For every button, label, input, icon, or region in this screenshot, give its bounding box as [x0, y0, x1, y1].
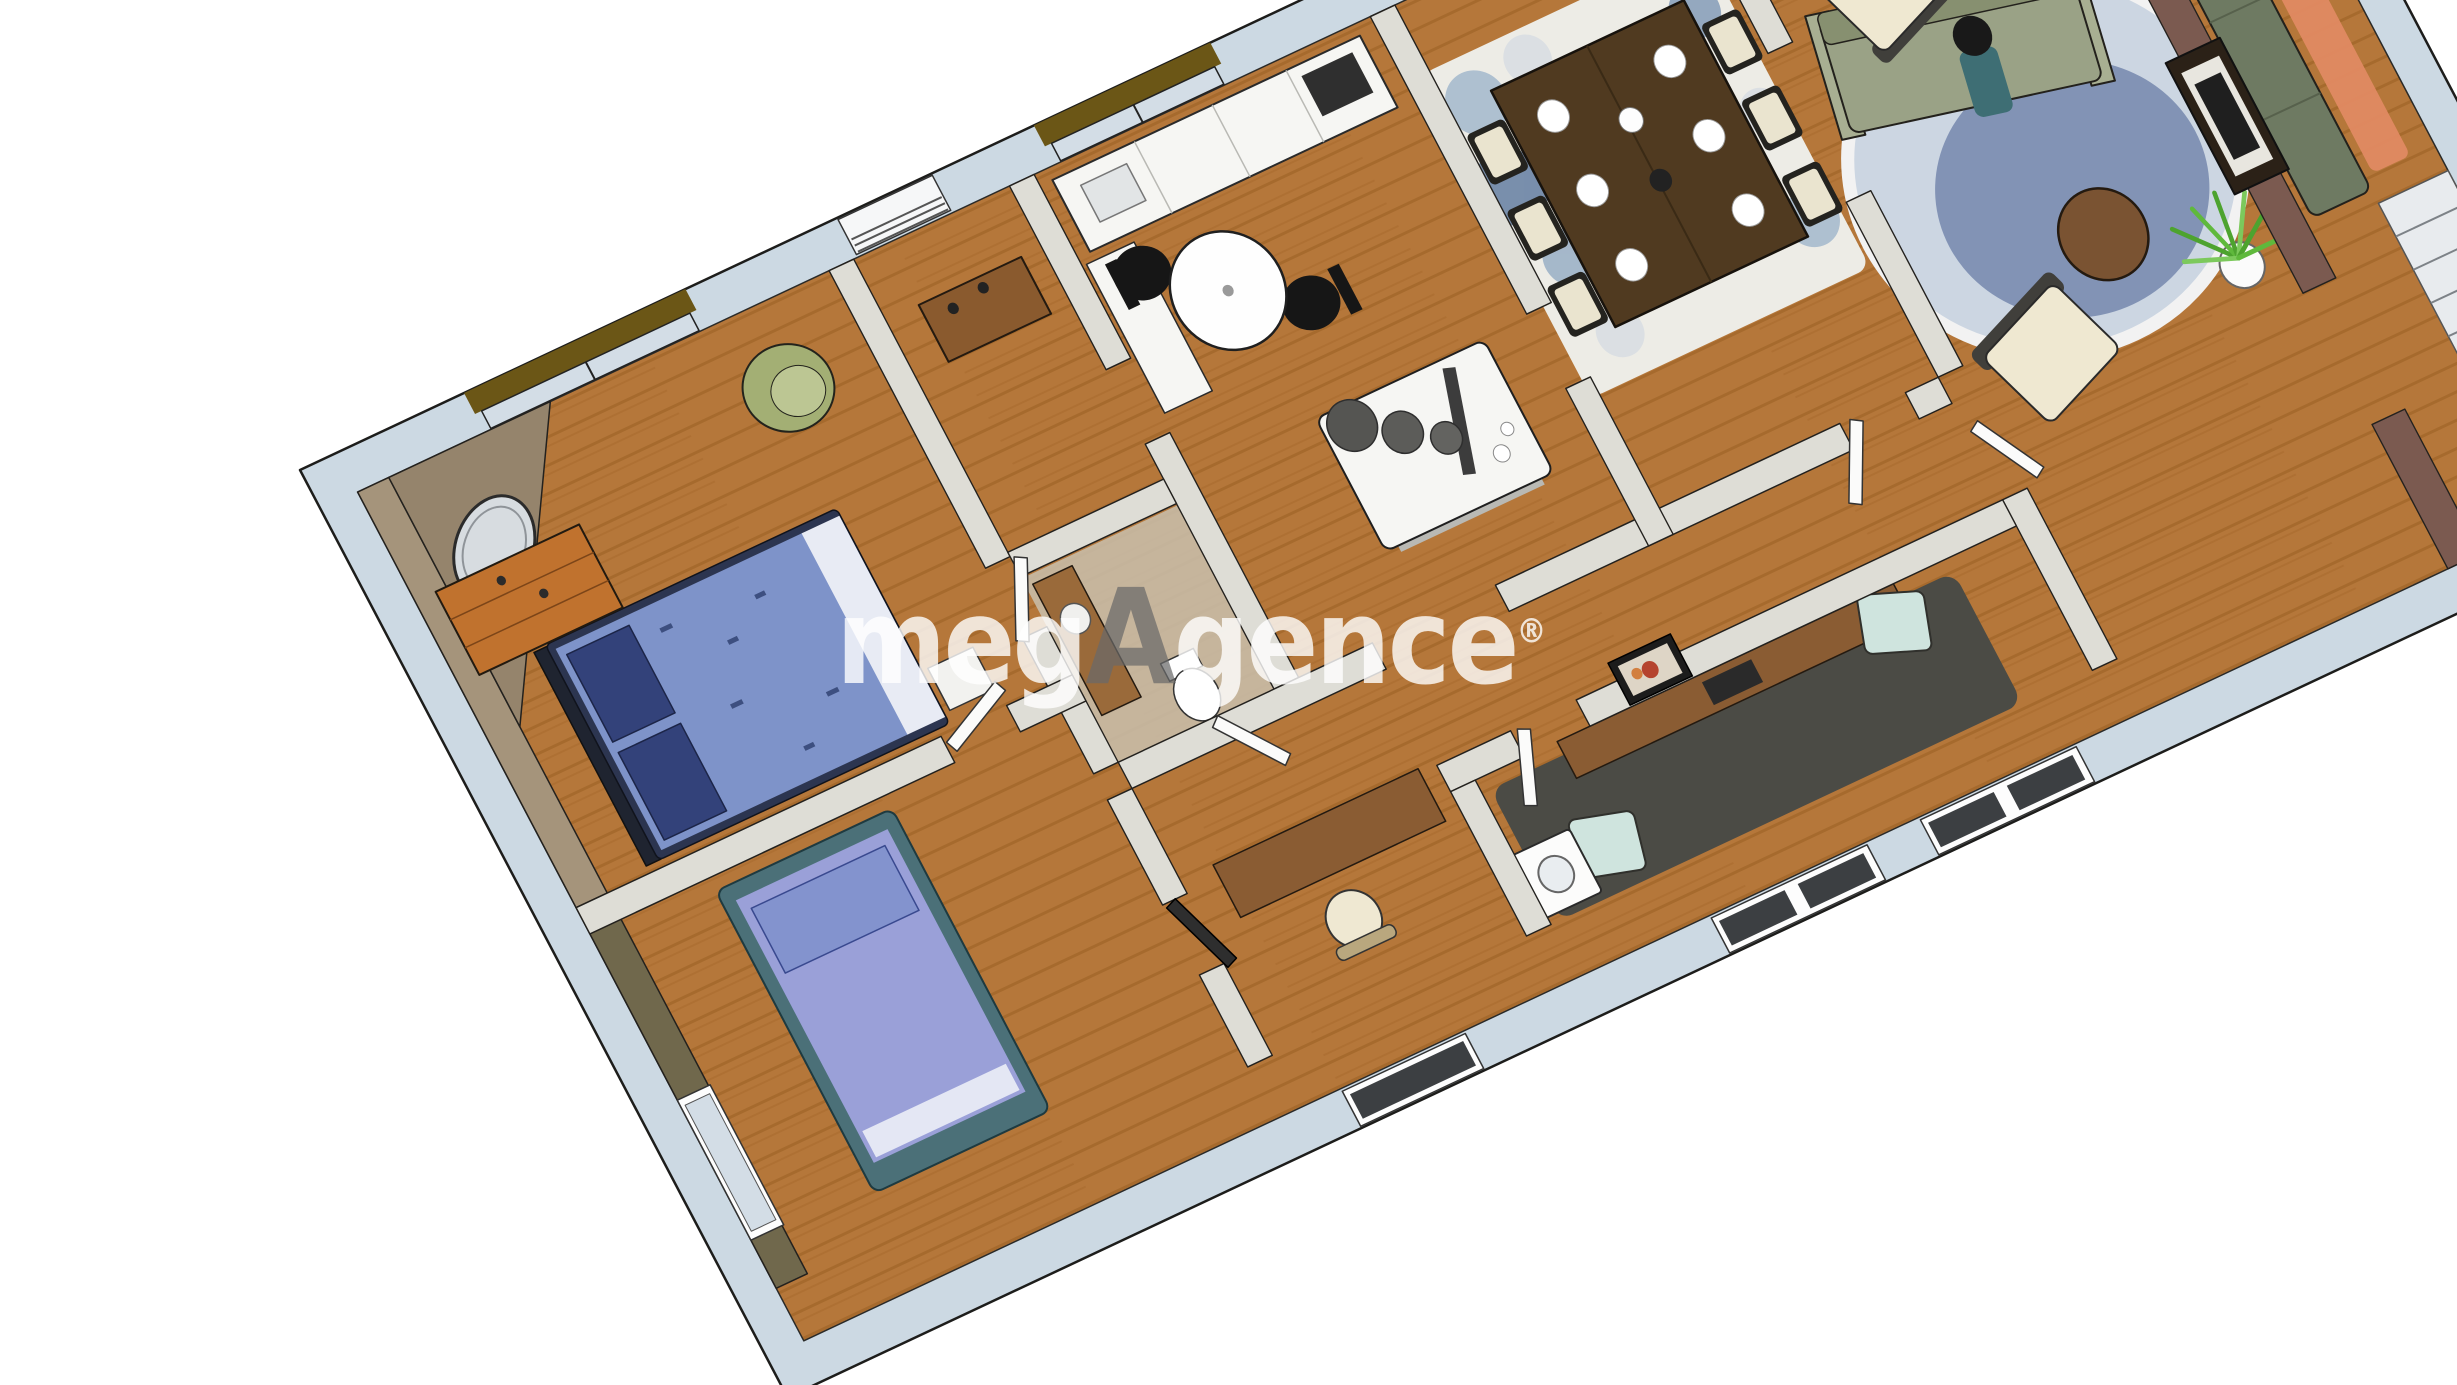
mint-chair	[1856, 591, 1932, 655]
floor-plan-3d-render	[0, 0, 2457, 1385]
white-door-leaf	[1014, 557, 1029, 642]
white-door-leaf	[1849, 420, 1863, 505]
floor-plan-screenshot: megAgence®	[0, 0, 2457, 1385]
